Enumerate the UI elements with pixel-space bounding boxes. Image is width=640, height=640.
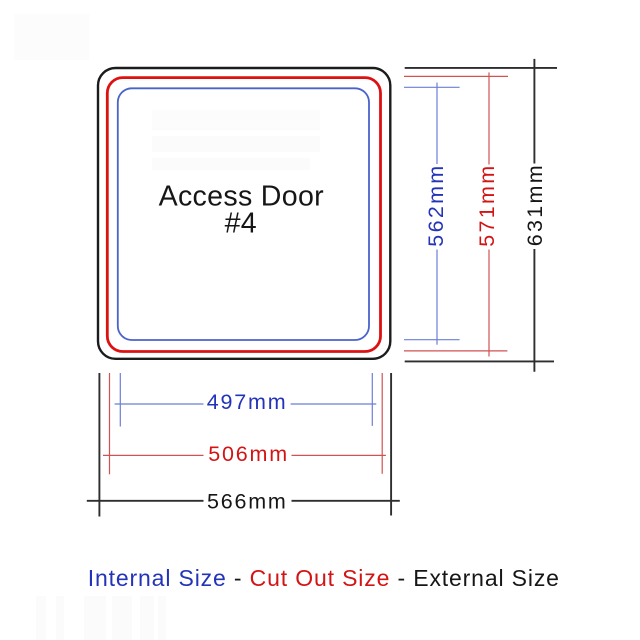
- svg-text:571mm: 571mm: [475, 164, 499, 247]
- svg-text:506mm: 506mm: [208, 442, 289, 466]
- svg-text:Internal Size - Cut Out Size -: Internal Size - Cut Out Size - External …: [88, 565, 560, 591]
- svg-text:562mm: 562mm: [424, 163, 448, 246]
- svg-text:#4: #4: [225, 208, 257, 240]
- svg-text:566mm: 566mm: [207, 490, 288, 514]
- svg-text:631mm: 631mm: [523, 163, 547, 246]
- svg-text:497mm: 497mm: [207, 390, 288, 414]
